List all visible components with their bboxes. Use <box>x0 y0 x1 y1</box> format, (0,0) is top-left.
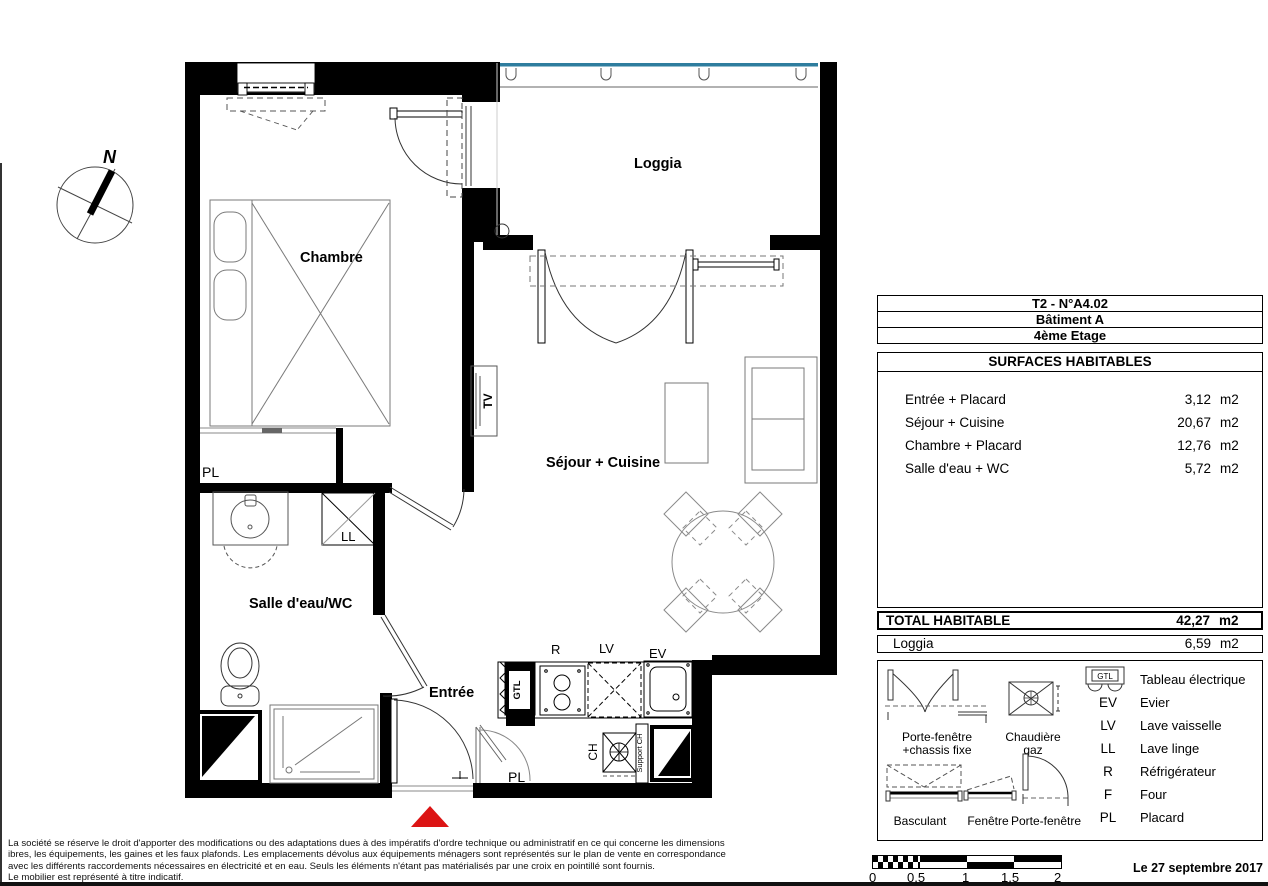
building-name: Bâtiment A <box>878 311 1262 327</box>
legend-symbol-label: +chassis fixe <box>902 743 971 757</box>
surfaces-table: SURFACES HABITABLES Entrée + Placard 3,1… <box>877 352 1263 608</box>
table-row: Séjour + Cuisine 20,67 m2 <box>878 411 1262 434</box>
scale-ticks: 0 0,5 1 1,5 2 <box>866 870 1066 884</box>
legend-symbol-label: Basculant <box>894 814 947 828</box>
entrance-door <box>391 699 473 791</box>
legend-item-label: Placard <box>1140 810 1184 826</box>
surface-unit: m2 <box>1211 388 1262 411</box>
bed <box>210 200 390 426</box>
sejour-portefenetre <box>530 250 783 343</box>
entry-marker-icon <box>411 806 449 827</box>
surface-label: Salle d'eau + WC <box>878 457 1009 480</box>
chambre-portefenetre <box>390 98 471 197</box>
scale-tick: 1,5 <box>1001 870 1019 885</box>
chambre-door <box>389 487 464 530</box>
compass-icon: N <box>57 147 133 243</box>
legend-item-label: Lave vaisselle <box>1140 718 1222 734</box>
surface-label: Entrée + Placard <box>878 388 1006 411</box>
total-row: TOTAL HABITABLE 42,27 m2 <box>877 611 1263 630</box>
surface-label: Séjour + Cuisine <box>878 411 1004 434</box>
disclaimer-line: La société se réserve le droit d'apporte… <box>8 838 860 849</box>
disclaimer-line: Le mobilier est représenté à titre indic… <box>8 872 860 883</box>
scale-bar <box>872 855 1062 869</box>
toilet <box>221 643 259 706</box>
surface-label: Chambre + Placard <box>878 434 1022 457</box>
sink <box>644 661 692 717</box>
label-support-ch: Support CH <box>635 733 644 772</box>
floorplan-page: N <box>0 0 1268 886</box>
fenetre-icon <box>963 772 1017 806</box>
room-label-chambre: Chambre <box>300 250 363 266</box>
scale-segment <box>1014 862 1061 868</box>
label-tv: TV <box>481 393 495 408</box>
surface-value: 5,72 <box>1155 457 1211 480</box>
loggia-unit: m2 <box>1211 636 1262 652</box>
disclaimer-line: avec les différents raccordements nécess… <box>8 861 860 872</box>
total-value: 42,27 <box>1154 613 1210 628</box>
surface-unit: m2 <box>1211 457 1262 480</box>
surface-value: 3,12 <box>1155 388 1211 411</box>
coffee-table <box>665 383 708 463</box>
surfaces-title: SURFACES HABITABLES <box>878 353 1262 372</box>
unit-title: T2 - N°A4.02 <box>878 296 1262 311</box>
table-row: Chambre + Placard 12,76 m2 <box>878 434 1262 457</box>
label-ll: LL <box>341 529 355 544</box>
legend-item-code: LL <box>1090 741 1126 757</box>
legend-item-label: Four <box>1140 787 1167 803</box>
scale-tick: 1 <box>962 870 969 885</box>
table-row: Salle d'eau + WC 5,72 m2 <box>878 457 1262 480</box>
surface-unit: m2 <box>1211 434 1262 457</box>
room-label-salle-eau: Salle d'eau/WC <box>249 596 353 612</box>
sofa <box>745 357 817 483</box>
dining-set <box>664 492 782 632</box>
loggia-label: Loggia <box>878 636 934 652</box>
legend-item-code: F <box>1090 787 1126 803</box>
room-label-sejour: Séjour + Cuisine <box>546 455 660 471</box>
scale-tick: 0 <box>869 870 876 885</box>
tableau-electrique-icon: GTL <box>1085 666 1127 694</box>
washbasin <box>213 492 288 568</box>
surface-unit: m2 <box>1211 411 1262 434</box>
floor-name: 4ème Etage <box>878 327 1262 343</box>
loggia-row: Loggia 6,59 m2 <box>877 635 1263 653</box>
kitchen-counter <box>498 661 692 718</box>
pillow <box>214 212 246 262</box>
label-pl-entree: PL <box>508 769 525 785</box>
total-unit: m2 <box>1210 613 1261 628</box>
duct-shaft <box>652 727 693 780</box>
loggia-railing <box>495 63 818 238</box>
basculant-icon <box>884 762 964 807</box>
page-left-edge <box>0 163 2 886</box>
surface-value: 12,76 <box>1155 434 1211 457</box>
label-lv: LV <box>599 641 614 656</box>
disclaimer-text: La société se réserve le droit d'apporte… <box>8 838 860 884</box>
shower <box>270 705 378 783</box>
duct-shaft <box>198 712 260 782</box>
label-ev: EV <box>649 646 667 661</box>
plan-date: Le 27 septembre 2017 <box>1130 861 1263 875</box>
legend-symbol-label: Fenêtre <box>967 814 1008 828</box>
chambre-closet <box>200 428 336 433</box>
room-label-loggia: Loggia <box>634 156 682 172</box>
scale-segment <box>920 862 967 868</box>
surface-value: 20,67 <box>1155 411 1211 434</box>
legend-symbol-label: Chaudière <box>1005 730 1060 744</box>
legend-item-label: Tableau électrique <box>1140 672 1246 688</box>
bathroom-door <box>381 615 427 696</box>
legend-item-code: R <box>1090 764 1126 780</box>
total-label: TOTAL HABITABLE <box>879 613 1010 628</box>
portefenetre-icon <box>1020 752 1072 808</box>
chaudiere-gaz-icon <box>1008 680 1062 718</box>
label-r: R <box>551 642 560 657</box>
gtl-symbol-text: GTL <box>1097 672 1113 681</box>
pillow <box>214 270 246 320</box>
legend-item-code: LV <box>1090 718 1126 734</box>
label-ch: CH <box>586 743 600 760</box>
disclaimer-line: ibres, les équipements, les gaines et le… <box>8 849 860 860</box>
label-gtl: GTL <box>512 680 523 699</box>
chambre-window <box>227 63 325 130</box>
table-row: Entrée + Placard 3,12 m2 <box>878 388 1262 411</box>
unit-header-table: T2 - N°A4.02 Bâtiment A 4ème Etage <box>877 295 1263 344</box>
legend-item-label: Evier <box>1140 695 1170 711</box>
portefenetre-chassis-icon <box>885 668 990 726</box>
label-pl-chambre: PL <box>202 464 219 480</box>
legend-symbol-label: Porte-fenêtre <box>1011 814 1081 828</box>
legend-item-code: EV <box>1090 695 1126 711</box>
scale-tick: 2 <box>1054 870 1061 885</box>
scale-segment <box>967 862 1014 868</box>
room-label-entree: Entrée <box>429 685 474 701</box>
scale-tick: 0,5 <box>907 870 925 885</box>
legend-item-label: Lave linge <box>1140 741 1199 757</box>
compass-north-label: N <box>103 147 117 167</box>
loggia-value: 6,59 <box>1155 636 1211 652</box>
legend-item-label: Réfrigérateur <box>1140 764 1216 780</box>
legend-symbol-label: Porte-fenêtre <box>902 730 972 744</box>
dishwasher <box>588 663 641 717</box>
legend-item-code: PL <box>1090 810 1126 826</box>
scale-segment <box>873 862 920 868</box>
